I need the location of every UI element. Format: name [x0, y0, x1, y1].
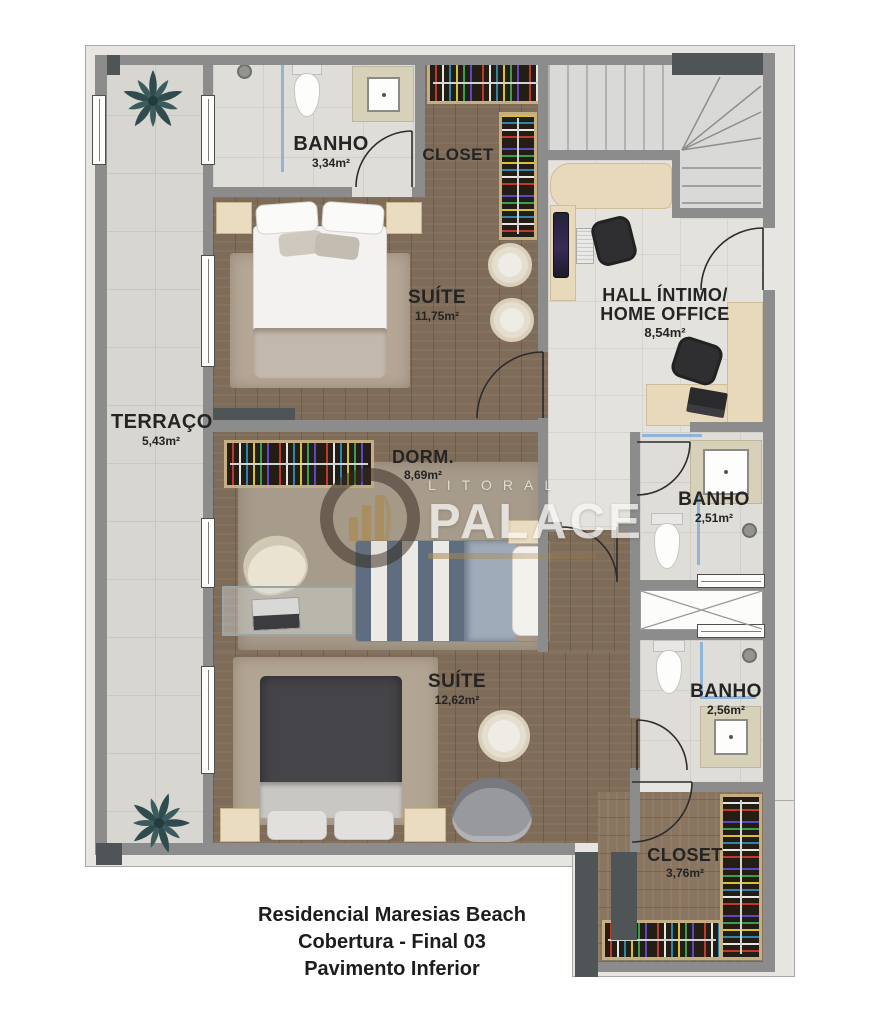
plant-icon [118, 66, 188, 136]
room-label-banho2: BANHO 2,51m² [664, 490, 764, 525]
room-name: BANHO [276, 134, 386, 155]
window-icon [92, 95, 106, 165]
wardrobe-icon [499, 112, 537, 240]
toilet-icon [292, 63, 322, 119]
pouf-icon [488, 243, 532, 287]
sink-icon [367, 77, 400, 112]
window-icon [201, 255, 215, 367]
room-name: BANHO [664, 490, 764, 510]
window-icon [697, 624, 765, 638]
bed-dark-duvet [260, 676, 402, 794]
wall [95, 55, 672, 65]
room-name: CLOSET [635, 846, 735, 865]
room-area: 12,62m² [412, 694, 502, 707]
suite2-nightstand-right [404, 808, 446, 842]
floor-plan: TERRAÇO 5,43m² BANHO 3,34m² CLOSET SUÍTE… [0, 0, 882, 1024]
wall [672, 150, 680, 218]
wardrobe-icon [427, 62, 545, 104]
suite2-nightstand-left [220, 808, 260, 842]
monitor-icon [553, 212, 569, 278]
shower-head-icon [742, 648, 757, 663]
room-name: TERRAÇO [111, 412, 211, 433]
wall [213, 187, 352, 197]
room-name: BANHO [676, 682, 776, 702]
window-icon [201, 518, 215, 588]
bed-pillow [321, 201, 385, 235]
room-area: 5,43m² [111, 435, 211, 448]
corridor-wood-floor [548, 530, 640, 652]
double-bed-icon [260, 676, 402, 840]
wardrobe-icon [224, 440, 374, 488]
shower-head-icon [237, 64, 252, 79]
room-label-closet2: CLOSET 3,76m² [635, 846, 735, 879]
wall [617, 522, 640, 532]
wall [538, 432, 548, 652]
room-label-terraco: TERRAÇO 5,43m² [111, 412, 211, 448]
suite1-nightstand-left [216, 202, 252, 234]
room-name: SUÍTE [392, 288, 482, 308]
room-name: CLOSET [410, 146, 506, 164]
shower-head-icon [742, 523, 757, 538]
bed-blanket [253, 328, 387, 378]
room-area: 2,56m² [676, 704, 776, 717]
wall [690, 422, 763, 432]
wall [630, 432, 640, 718]
room-name-line2: HOME OFFICE [590, 305, 740, 324]
room-area: 3,76m² [635, 867, 735, 880]
room-area: 11,75m² [392, 310, 482, 323]
wall-dark-block [611, 852, 637, 940]
wall [213, 420, 548, 432]
room-area: 8,69m² [378, 469, 468, 482]
single-bed-icon [355, 540, 550, 642]
bed-pillow [267, 810, 327, 840]
room-terraco-floor [97, 57, 213, 853]
bed-pillow [334, 810, 394, 840]
window-icon [201, 666, 215, 774]
stairs-winder [680, 75, 763, 218]
caption-line-3: Pavimento Inferior [212, 956, 572, 983]
room-area: 3,34m² [276, 157, 386, 170]
wall [598, 962, 763, 972]
wall [692, 782, 775, 792]
room-label-hall: HALL ÍNTIMO/ HOME OFFICE 8,54m² [590, 286, 740, 339]
wall [763, 792, 775, 972]
caption-line-1: Residencial Maresias Beach [212, 902, 572, 929]
room-name-line1: HALL ÍNTIMO/ [590, 286, 740, 305]
caption-line-2: Cobertura - Final 03 [212, 929, 572, 956]
pouf-icon [478, 710, 530, 762]
wall-dark-block [575, 852, 598, 977]
bed-folded-duvet [464, 541, 516, 641]
room-name: SUÍTE [412, 672, 502, 692]
room-label-suite1: SUÍTE 11,75m² [392, 288, 482, 323]
room-label-banho1: BANHO 3,34m² [276, 134, 386, 170]
room-label-closet1: CLOSET [410, 146, 506, 164]
plant-icon [124, 788, 194, 858]
wall [763, 53, 775, 228]
wall [95, 55, 107, 855]
stairs-straight-flight [548, 57, 680, 150]
suite1-nightstand-right [386, 202, 422, 234]
wall-dark-block [672, 53, 772, 75]
pouf-icon [490, 298, 534, 342]
sink-counter [352, 66, 414, 122]
room-name: DORM. [378, 448, 468, 467]
wall-dark-block [96, 843, 122, 865]
bed-striped-duvet [356, 541, 474, 641]
sink-icon [714, 719, 748, 755]
wall [548, 522, 562, 532]
double-bed-icon [253, 200, 387, 378]
desk-icon [550, 163, 672, 209]
shower-glass [642, 434, 702, 437]
wall [548, 150, 680, 160]
wall [538, 57, 548, 352]
room-area: 8,54m² [590, 326, 740, 340]
caption: Residencial Maresias Beach Cobertura - F… [212, 902, 572, 983]
wall [412, 187, 425, 197]
wall [680, 208, 763, 218]
dorm-side-table [508, 520, 542, 544]
room-label-suite2: SUÍTE 12,62m² [412, 672, 502, 707]
room-label-banho3: BANHO 2,56m² [676, 682, 776, 717]
corridor-tile-floor [548, 432, 640, 530]
room-label-dorm: DORM. 8,69m² [378, 448, 468, 481]
wall [630, 768, 640, 852]
window-icon [697, 574, 765, 588]
laptop-icon [251, 597, 301, 631]
wall [415, 57, 425, 197]
room-area: 2,51m² [664, 512, 764, 525]
window-icon [201, 95, 215, 165]
